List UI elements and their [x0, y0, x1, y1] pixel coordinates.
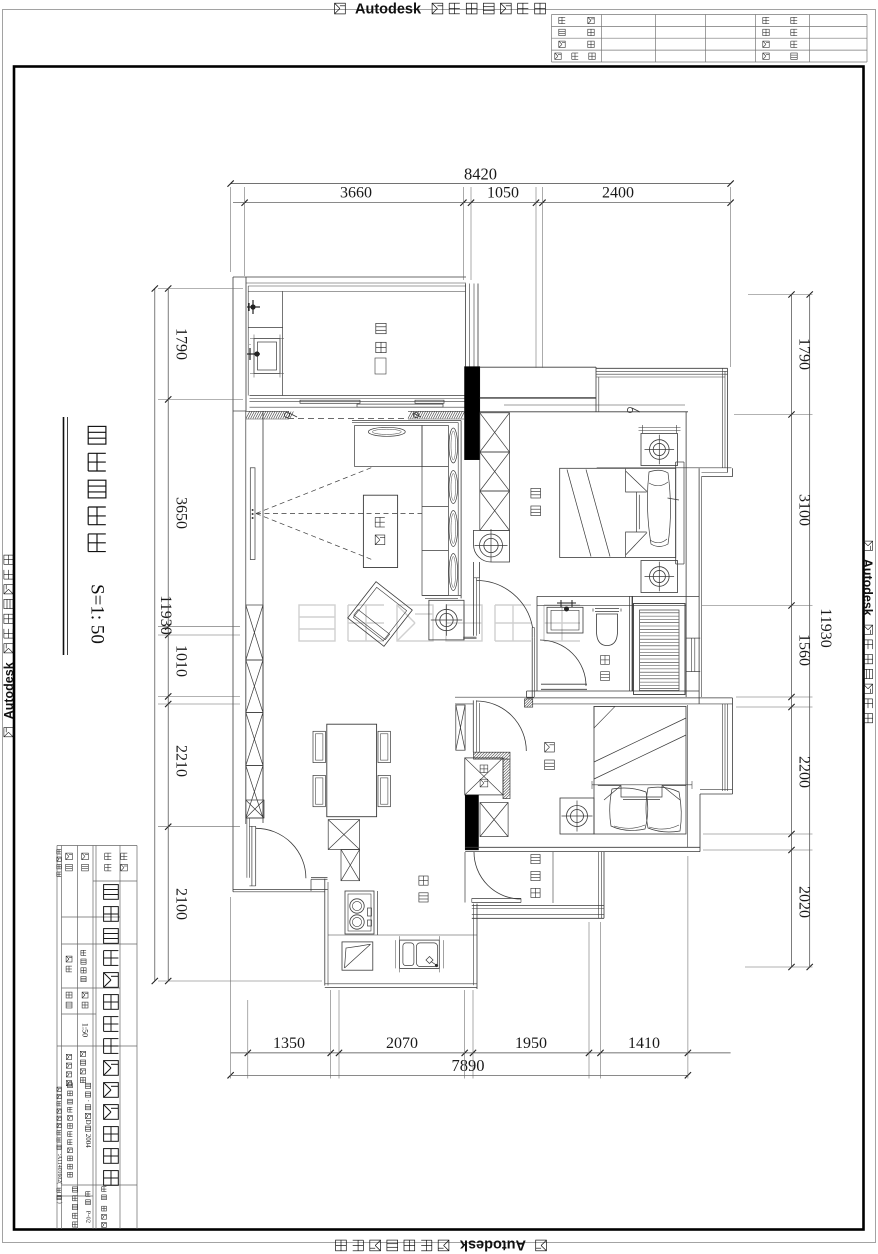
svg-text:1050: 1050	[487, 185, 519, 202]
svg-text:1350: 1350	[273, 1035, 305, 1052]
svg-text:Autodesk: Autodesk	[459, 1236, 526, 1252]
svg-text:2400: 2400	[602, 185, 634, 202]
svg-text:11930: 11930	[817, 608, 834, 647]
svg-text:D: D	[84, 1120, 92, 1125]
svg-text:2070: 2070	[386, 1035, 418, 1052]
svg-text:Autodesk: Autodesk	[355, 2, 422, 18]
svg-text:P-02: P-02	[85, 1211, 92, 1223]
svg-text:Autodesk: Autodesk	[2, 662, 16, 719]
svg-text:1950: 1950	[515, 1035, 547, 1052]
svg-text:2004: 2004	[84, 1134, 92, 1149]
svg-text::A11401602(: :A11401602(	[56, 1153, 63, 1184]
svg-text:3100: 3100	[796, 494, 813, 526]
svg-text:3660: 3660	[340, 185, 372, 202]
svg-text:1790: 1790	[796, 338, 813, 370]
svg-text:8420: 8420	[464, 165, 497, 184]
svg-text:1560: 1560	[796, 634, 813, 666]
svg-text:): )	[56, 1202, 63, 1204]
svg-text:1790: 1790	[173, 328, 190, 360]
svg-text:1410: 1410	[628, 1035, 660, 1052]
svg-text:·: ·	[84, 1100, 92, 1102]
svg-text:1:50: 1:50	[81, 1023, 90, 1037]
svg-text:2020: 2020	[796, 886, 813, 918]
svg-text:2200: 2200	[796, 756, 813, 788]
svg-text:3650: 3650	[173, 497, 190, 529]
svg-text:7890: 7890	[452, 1056, 485, 1075]
svg-text:Autodesk: Autodesk	[861, 559, 875, 616]
svg-text:2100: 2100	[173, 888, 190, 920]
svg-text:S=1: 50: S=1: 50	[87, 584, 108, 644]
svg-text:1010: 1010	[173, 645, 190, 677]
svg-text:11930: 11930	[157, 595, 174, 634]
svg-text:2210: 2210	[173, 745, 190, 777]
